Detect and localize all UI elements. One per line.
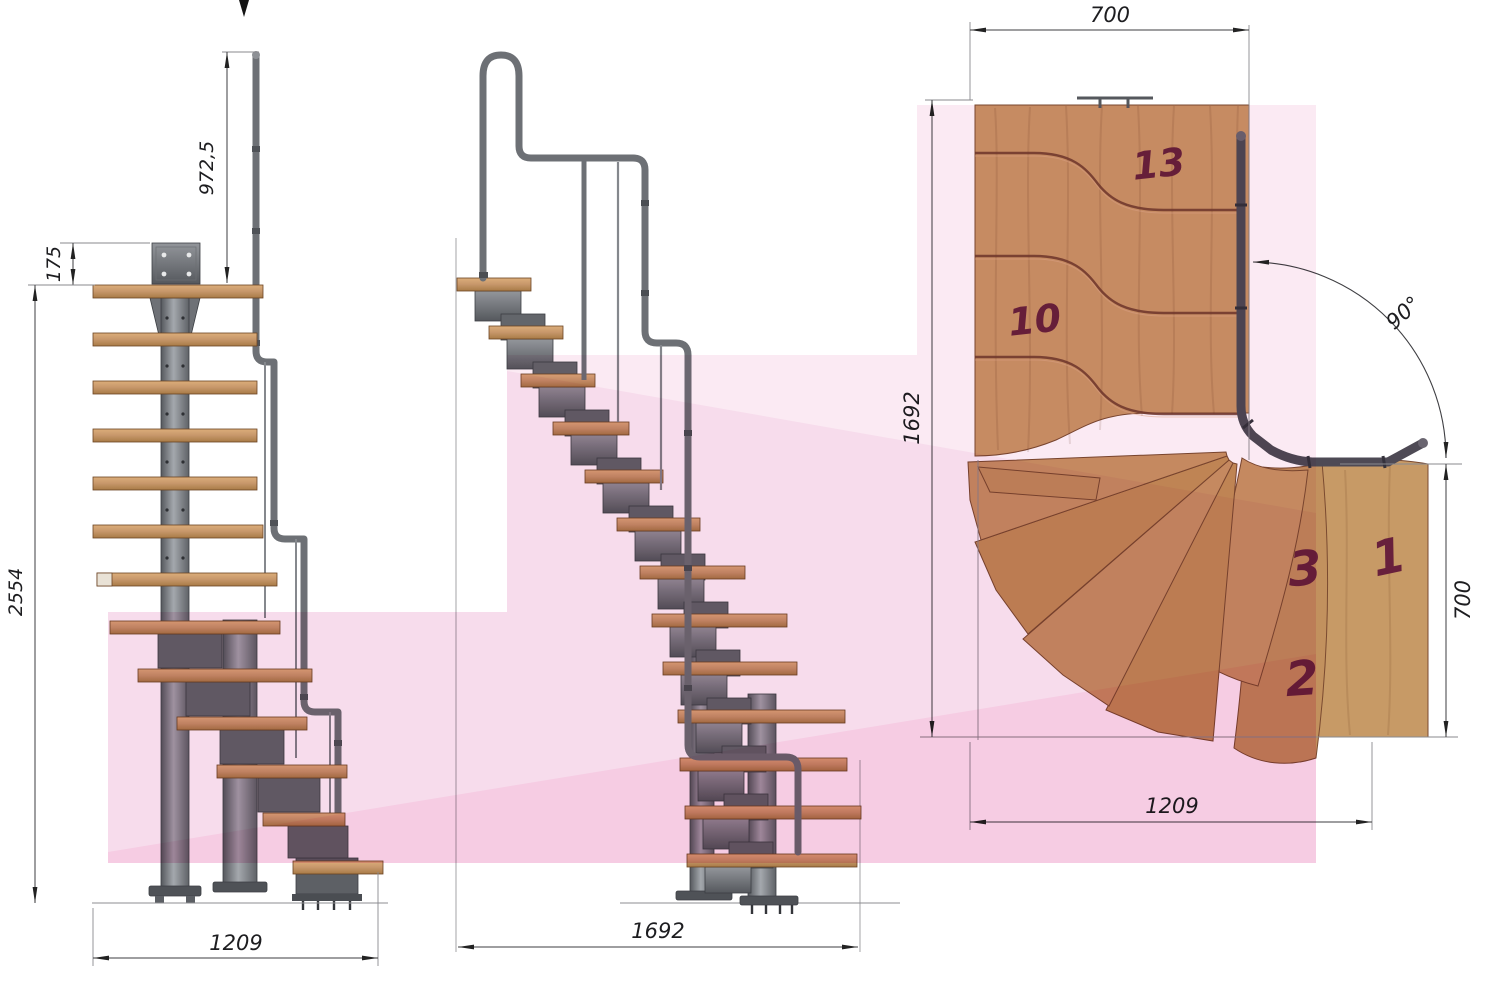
angle-90-label: 90° [1381,291,1425,334]
dim-1692-side-label: 1692 [631,919,684,943]
dim-2554-label: 2554 [5,568,27,616]
dim-700-top-label: 700 [1090,3,1130,27]
side-dimensions: 1692 [458,919,858,947]
dim-972-5-label: 972,5 [196,141,218,195]
wall-mount-bracket [152,243,200,284]
dim-175-label: 175 [43,246,65,282]
drawing-canvas: 972,5 175 2554 1209 [0,0,1500,998]
dim-1209-front-label: 1209 [209,931,262,955]
pink-highlight-overlay [108,105,1316,863]
staircase-technical-drawing: 972,5 175 2554 1209 [0,0,1500,998]
pointer-arrow-icon [239,0,249,17]
dim-700-right-label: 700 [1451,580,1475,620]
